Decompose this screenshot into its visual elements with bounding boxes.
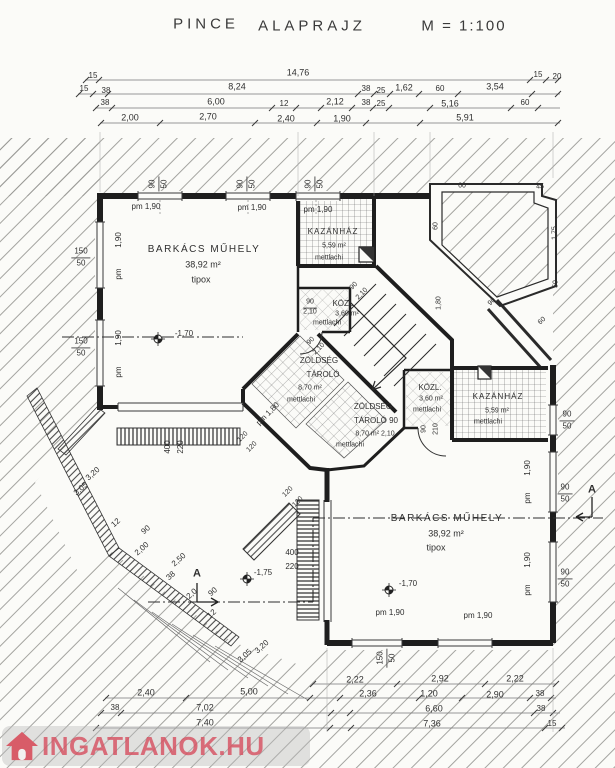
room-name: ZÖLDSÉG [300, 357, 338, 365]
window-size-label: 90 50 [560, 409, 575, 430]
room-floor: tipox [191, 276, 210, 285]
room-name: TÁROLÓ 90 [354, 417, 398, 425]
watermark-text: INGATLANOK.HU [42, 731, 265, 762]
dim-label: 15 [548, 720, 557, 728]
room-name: TÁROLÓ [307, 371, 340, 379]
room-floor: mettlachi [315, 255, 343, 262]
dim-label: 5,16 [441, 100, 459, 109]
dim-label: 5,00 [240, 688, 258, 697]
dim-label: 25 [377, 87, 386, 95]
dim-label: 1,80 [436, 296, 443, 310]
dim-label: 60 [521, 99, 530, 107]
watermark: INGATLANOK.HU [2, 726, 310, 766]
room-name: BARKÁCS MŰHELY [391, 514, 504, 524]
dim-label: 38 [537, 705, 546, 713]
window-height: 50 [315, 180, 325, 189]
dim-label: 38 [362, 99, 371, 107]
dim-label: 60 [436, 85, 445, 93]
room-name: KÖZL. [332, 300, 355, 308]
dim-label: 2,22 [506, 675, 524, 684]
dim-label: 1,20 [420, 690, 438, 699]
title-pince: PINCE [173, 17, 239, 32]
parapet-label: 1,90 [115, 330, 123, 346]
grate-size: 400 [285, 549, 298, 557]
dim-label: 15 [534, 71, 543, 79]
room-floor: tipox [426, 544, 445, 553]
parapet-label: pm 1,90 [376, 609, 405, 617]
dim-label: 1,90 [333, 115, 351, 124]
door-height: 2,10 [303, 309, 317, 317]
window-size-label: 90 50 [558, 567, 573, 588]
window-size-label: 90 50 [303, 177, 324, 192]
window-height: 50 [387, 654, 397, 663]
dim-label: 60 [433, 222, 440, 230]
window-size-label: 90 50 [235, 177, 256, 192]
parapet-label: 1,90 [115, 232, 123, 248]
dim-label: 20 [553, 73, 562, 81]
room-name: BARKÁCS MŰHELY [148, 245, 261, 255]
grate-size: 220 [177, 440, 185, 453]
dim-label: 15 [80, 85, 89, 93]
window-height: 50 [561, 494, 570, 504]
level-value: -1,70 [399, 580, 417, 588]
window-height: 50 [561, 579, 570, 589]
window-width: 90 [147, 177, 159, 192]
dim-label: 38 [536, 690, 545, 698]
window-width: 150 [71, 246, 90, 258]
dim-label: 2,22 [346, 676, 364, 685]
window-width: 90 [558, 567, 573, 579]
dim-label: 6,00 [207, 98, 225, 107]
window-size-label: 150 50 [71, 246, 90, 267]
dim-label: 45 [536, 184, 544, 191]
room-floor: mettlachi [413, 407, 441, 414]
room-area: 3,60 m² [419, 396, 443, 403]
dim-label: 38 [362, 85, 371, 93]
dim-label: 2,70 [199, 113, 217, 122]
dim-label: 2,40 [137, 689, 155, 698]
parapet-label: 1,90 [524, 460, 532, 476]
dim-label: 25 [377, 100, 386, 108]
room-name: KAZÁNHÁZ [308, 228, 359, 236]
room-area: 5,59 m² [322, 243, 346, 250]
dim-label: 8,24 [228, 83, 246, 92]
parapet-label: pm [524, 492, 532, 503]
parapet-label: pm 1,90 [132, 203, 161, 211]
window-height: 50 [77, 348, 86, 358]
room-name: KAZÁNHÁZ [473, 393, 524, 401]
dim-label: 38 [101, 99, 110, 107]
room-area: 38,92 m² [185, 261, 221, 270]
section-marker: A [588, 485, 596, 496]
window-width: 90 [560, 409, 575, 421]
level-value: -1,75 [254, 569, 272, 577]
door-size-label: 210 [433, 423, 440, 435]
dim-label: 14,76 [287, 69, 310, 78]
dim-label: 1,75 [552, 226, 559, 240]
dim-label: 2,00 [121, 114, 139, 123]
window-size-label: 90 50 [147, 177, 168, 192]
dim-label: 5,91 [456, 114, 474, 123]
dim-label: 38 [111, 704, 120, 712]
room-area: 5,59 m² [485, 408, 509, 415]
dim-label: 60 [458, 183, 466, 190]
room-floor: mettlachi [474, 419, 502, 426]
dim-label: 15 [89, 72, 98, 80]
window-height: 50 [247, 180, 257, 189]
room-floor: mettlachi [313, 320, 341, 327]
window-width: 90 [303, 177, 315, 192]
parapet-label: pm 1,90 [304, 206, 333, 214]
room-area: 8,70 m² 2,10 [355, 431, 394, 438]
dim-label: 50 [553, 280, 560, 288]
parapet-label: pm 1,90 [464, 612, 493, 620]
window-width: 150 [71, 336, 90, 348]
dim-label: 2,12 [326, 98, 344, 107]
dim-label: 1,62 [395, 84, 413, 93]
window-size-label: 150 50 [375, 648, 396, 667]
parapet-label: pm [524, 584, 532, 595]
window-height: 50 [563, 421, 572, 431]
room-area: 8,70 m² [298, 385, 322, 392]
grate-size: 220 [285, 563, 298, 571]
room-name: ZÖLDSÉG [354, 403, 392, 411]
parapet-label: pm [115, 366, 123, 377]
dim-label: 2,92 [431, 675, 449, 684]
dim-label: 2,40 [277, 115, 295, 124]
room-floor: mettlachi [336, 442, 364, 449]
section-marker: A [193, 569, 201, 580]
door-width: 90 [303, 299, 317, 309]
window-size-label: 90 50 [558, 482, 573, 503]
parapet-label: pm 1,90 [238, 204, 267, 212]
dim-label: 7,02 [196, 704, 214, 713]
parapet-label: pm [115, 268, 123, 279]
title-alaprajz: ALAPRAJZ [258, 19, 366, 34]
room-floor: mettlachi [287, 397, 315, 404]
house-icon [6, 731, 38, 761]
dim-label: 6,60 [425, 705, 443, 714]
kazanhaz-lower-floor [454, 370, 546, 438]
unexcavated-block [430, 184, 556, 369]
room-area: 3,60 m² [335, 311, 359, 318]
title-scale: M = 1:100 [421, 19, 506, 34]
dim-label: 2,36 [359, 690, 377, 699]
room-area: 38,92 m² [428, 530, 464, 539]
dim-label: 7,36 [423, 720, 441, 729]
window-width: 90 [235, 177, 247, 192]
door-size-label: 90 [421, 425, 428, 433]
dim-label: 2,90 [486, 691, 504, 700]
floor-plan-page: PINCE ALAPRAJZ M = 1:100 15 14,76 15 20 … [0, 0, 615, 768]
dim-label: 12 [280, 100, 289, 108]
window-width: 150 [375, 648, 387, 667]
dim-label: 38 [102, 87, 111, 95]
window-width: 90 [558, 482, 573, 494]
window-height: 50 [159, 180, 169, 189]
grate-size: 400 [164, 440, 172, 453]
dim-label: 3,54 [486, 83, 504, 92]
window-size-label: 150 50 [71, 336, 90, 357]
parapet-label: 1,90 [524, 552, 532, 568]
window-height: 50 [77, 258, 86, 268]
room-name: KÖZL. [418, 384, 441, 392]
level-value: -1,70 [175, 330, 193, 338]
door-size-label: 90 2,10 [303, 299, 317, 318]
